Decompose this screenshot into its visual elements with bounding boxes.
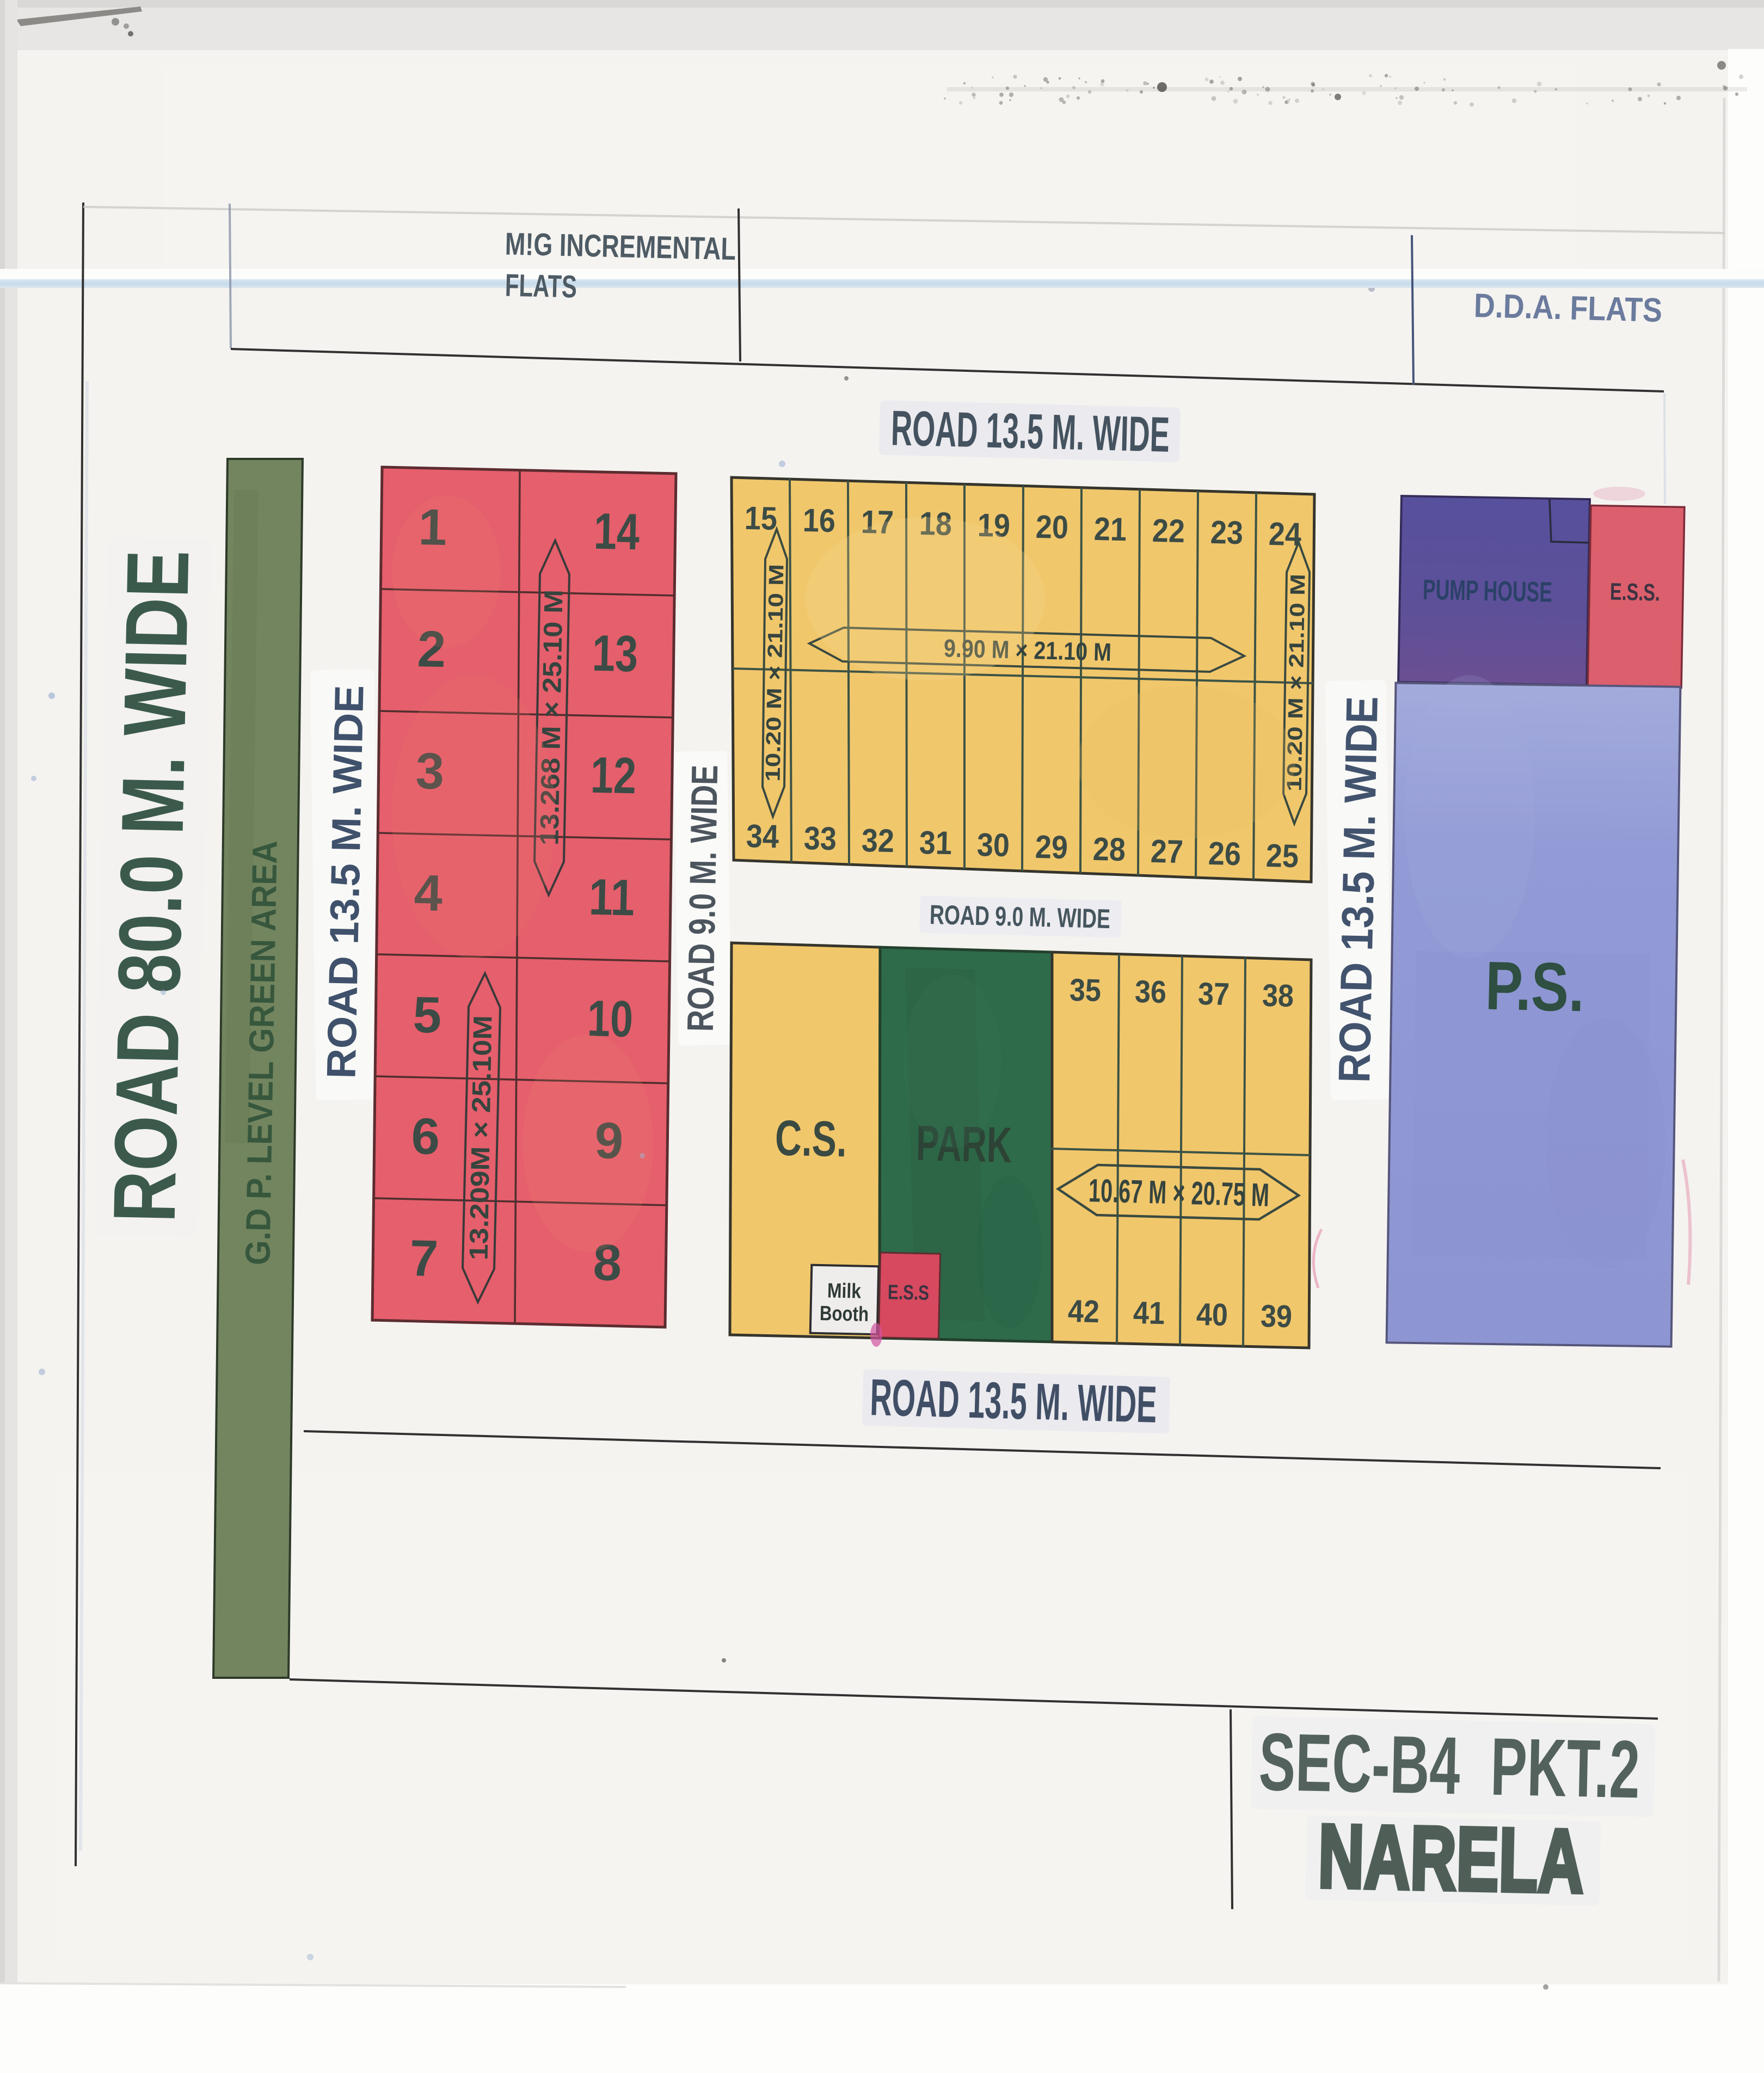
svg-text:ROAD 13.5 M. WIDE: ROAD 13.5 M. WIDE — [318, 685, 372, 1080]
svg-text:7: 7 — [409, 1229, 439, 1287]
svg-text:P.S.: P.S. — [1485, 947, 1585, 1026]
svg-text:20: 20 — [1035, 508, 1069, 545]
svg-text:13.209M × 25.10M: 13.209M × 25.10M — [465, 1015, 498, 1261]
svg-text:27: 27 — [1150, 833, 1184, 870]
svg-text:28: 28 — [1092, 831, 1126, 868]
svg-text:39: 39 — [1260, 1298, 1292, 1334]
svg-text:ROAD 9.0 M. WIDE: ROAD 9.0 M. WIDE — [680, 764, 726, 1032]
svg-text:12: 12 — [590, 746, 637, 805]
svg-text:41: 41 — [1133, 1295, 1165, 1331]
svg-text:ROAD 80.0 M. WIDE: ROAD 80.0 M. WIDE — [95, 549, 208, 1224]
svg-text:23: 23 — [1210, 514, 1244, 551]
svg-text:M!G INCREMENTAL: M!G INCREMENTAL — [505, 226, 736, 267]
svg-text:10.20 M × 21.10 M: 10.20 M × 21.10 M — [762, 564, 789, 782]
svg-text:15: 15 — [744, 500, 778, 537]
svg-text:36: 36 — [1134, 974, 1166, 1010]
svg-text:30: 30 — [976, 826, 1010, 863]
svg-text:E.S.S.: E.S.S. — [1609, 579, 1660, 606]
svg-text:34: 34 — [746, 818, 779, 855]
svg-text:SEC-B4 PKT.2: SEC-B4 PKT.2 — [1258, 1716, 1640, 1816]
svg-text:ROAD 9.0 M. WIDE: ROAD 9.0 M. WIDE — [929, 899, 1110, 934]
svg-text:22: 22 — [1152, 512, 1185, 549]
svg-text:ROAD 13.5 M. WIDE: ROAD 13.5 M. WIDE — [1330, 696, 1387, 1083]
svg-text:11: 11 — [588, 868, 635, 927]
svg-text:42: 42 — [1067, 1293, 1099, 1329]
svg-text:5: 5 — [413, 986, 442, 1044]
svg-text:31: 31 — [919, 824, 952, 861]
svg-text:33: 33 — [803, 820, 837, 857]
svg-text:6: 6 — [411, 1107, 440, 1165]
svg-text:37: 37 — [1197, 976, 1230, 1012]
svg-text:Booth: Booth — [820, 1302, 869, 1326]
svg-text:40: 40 — [1196, 1297, 1228, 1333]
svg-text:32: 32 — [861, 822, 895, 859]
svg-text:E.S.S: E.S.S — [888, 1281, 930, 1305]
svg-text:D.D.A. FLATS: D.D.A. FLATS — [1473, 287, 1663, 329]
svg-text:14: 14 — [593, 502, 640, 561]
svg-text:ROAD 13.5 M. WIDE: ROAD 13.5 M. WIDE — [890, 401, 1170, 462]
svg-text:C.S.: C.S. — [775, 1111, 847, 1168]
svg-text:21: 21 — [1093, 511, 1127, 548]
svg-text:G.D P. LEVEL GREEN AREA: G.D P. LEVEL GREEN AREA — [238, 840, 285, 1265]
svg-text:35: 35 — [1069, 972, 1101, 1008]
svg-text:29: 29 — [1035, 829, 1068, 866]
svg-text:38: 38 — [1262, 978, 1294, 1014]
svg-text:PUMP HOUSE: PUMP HOUSE — [1422, 574, 1552, 609]
svg-text:ROAD 13.5 M. WIDE: ROAD 13.5 M. WIDE — [869, 1369, 1158, 1434]
svg-text:26: 26 — [1208, 835, 1241, 872]
svg-text:Milk: Milk — [827, 1279, 862, 1303]
svg-text:13: 13 — [592, 624, 638, 683]
svg-text:FLATS: FLATS — [505, 268, 577, 305]
svg-text:NARELA: NARELA — [1317, 1806, 1585, 1911]
svg-text:25: 25 — [1265, 837, 1299, 874]
svg-text:10.67 M × 20.75 M: 10.67 M × 20.75 M — [1088, 1172, 1270, 1213]
svg-text:16: 16 — [802, 502, 836, 539]
